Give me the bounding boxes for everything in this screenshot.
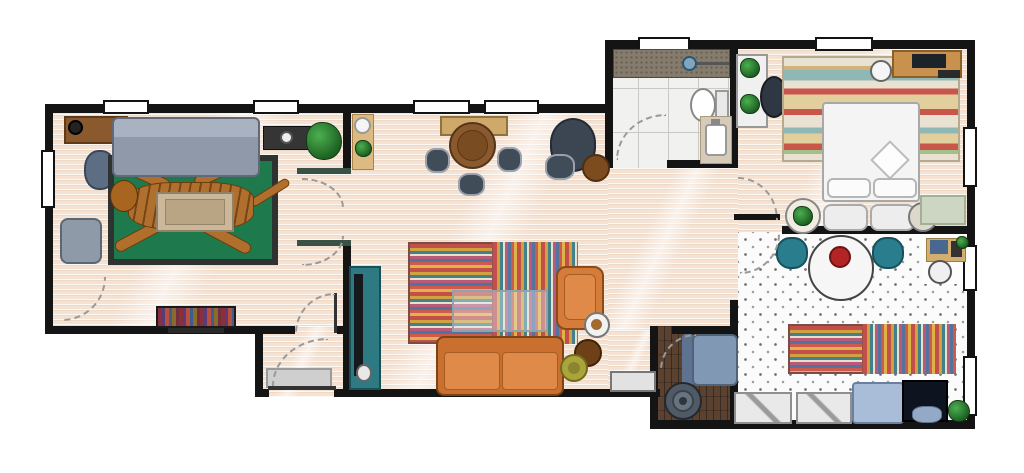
window-3 xyxy=(413,100,470,114)
front-door-leaf xyxy=(268,386,336,390)
plant-stand-plant xyxy=(793,206,813,226)
window-8 xyxy=(963,127,977,187)
wall-partition-upper xyxy=(343,113,351,170)
office-coffee-table-top xyxy=(165,199,225,225)
nook-desk-item xyxy=(930,240,948,254)
dining-table-inner xyxy=(457,130,488,161)
console-plant xyxy=(355,140,372,157)
desk-accessory xyxy=(938,70,960,78)
window-7 xyxy=(815,37,873,51)
bath-sink xyxy=(705,124,727,156)
floor-mat xyxy=(920,195,966,225)
utility-chair xyxy=(692,334,738,386)
bed-bench-left xyxy=(823,204,868,231)
wall-entry-left xyxy=(255,326,263,397)
bookshelf-base xyxy=(168,328,224,333)
side-table-snack xyxy=(591,319,602,330)
desk-lamp xyxy=(68,120,83,135)
tv-beanbag xyxy=(912,406,942,423)
wall-left xyxy=(45,104,53,334)
office-armchair xyxy=(60,218,102,264)
tiger-head xyxy=(110,180,138,212)
shelf-plant-top xyxy=(740,58,760,78)
round-table xyxy=(808,235,874,301)
lounge-ottoman xyxy=(545,154,575,180)
window-4 xyxy=(484,100,539,114)
bench-cushion-blue xyxy=(852,382,904,424)
laptop xyxy=(912,54,946,68)
window-5 xyxy=(41,150,55,208)
sofa-cushion-right xyxy=(502,352,558,390)
round-mirror xyxy=(870,60,892,82)
dining-chair-right xyxy=(497,147,522,172)
nook-plant xyxy=(956,236,969,249)
shower-head xyxy=(682,56,697,71)
shelf-plant-bottom xyxy=(740,94,760,114)
office-sofa xyxy=(112,117,260,177)
tray-table-inner xyxy=(568,362,580,374)
washer-knob xyxy=(679,397,687,405)
sofa-cushion-left xyxy=(444,352,500,390)
second-room-rug-swirl xyxy=(862,324,956,374)
bed-pillow-left xyxy=(827,178,871,198)
dining-chair-bottom xyxy=(458,173,485,196)
hall-bench xyxy=(610,371,656,392)
storage-bench-mid xyxy=(796,392,852,424)
wall-bottom-a xyxy=(255,389,269,397)
glass-coffee-table xyxy=(452,290,548,332)
storage-bench-left xyxy=(734,392,792,424)
lounge-side-table xyxy=(582,154,610,182)
second-room-plant xyxy=(948,400,970,422)
shower-arm xyxy=(697,62,729,65)
centerpiece xyxy=(829,246,851,268)
pouf-right xyxy=(872,237,904,269)
wall-stub-green-1 xyxy=(297,168,351,174)
bath-faucet xyxy=(711,119,720,125)
pouf-left xyxy=(776,237,808,269)
floor-plan xyxy=(0,0,1024,473)
media-speaker xyxy=(280,131,293,144)
console-lamp xyxy=(354,117,371,134)
bookshelf-console xyxy=(156,306,236,328)
wall-bath-left xyxy=(605,40,613,168)
office-plant xyxy=(306,122,342,160)
console-knob xyxy=(356,364,372,382)
wall-utility-top xyxy=(672,326,738,334)
nook-stool xyxy=(928,260,952,284)
window-1 xyxy=(103,100,149,114)
bed-pillow-right xyxy=(873,178,917,198)
dining-chair-left xyxy=(425,148,450,173)
window-2 xyxy=(253,100,299,114)
tv-screen xyxy=(354,274,363,376)
